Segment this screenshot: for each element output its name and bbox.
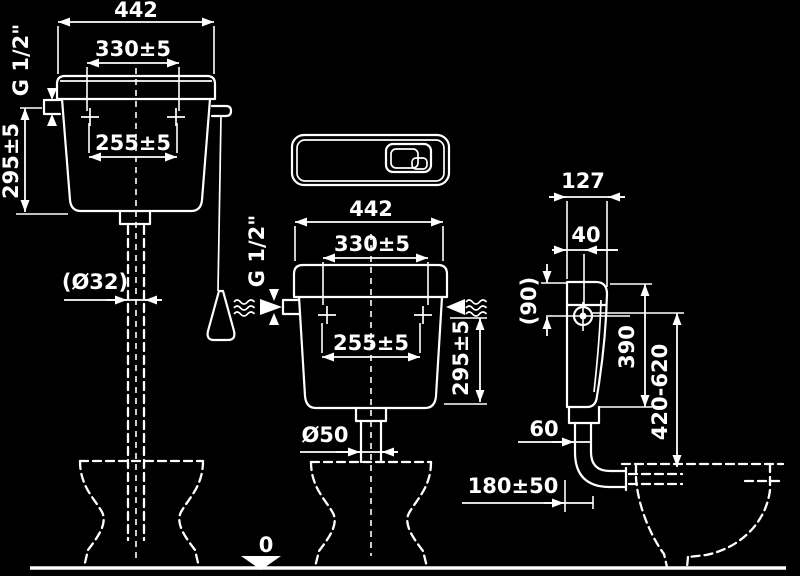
dim-width-label: 442 [114, 0, 158, 22]
high-level-cistern-front-view: 442 330±5 255±5 G 1/2" 295±5 (Ø32) [0, 0, 234, 567]
wc-bowl-front-hidden [80, 461, 203, 567]
cistern-top-view [292, 135, 449, 185]
dim-width-label: 442 [349, 197, 393, 221]
dim-lower-holes-label: 255±5 [95, 131, 171, 155]
dim-lower-holes-label: 255±5 [333, 331, 409, 355]
dim-depth-label: 127 [561, 169, 605, 193]
floor-level-label: 0 [259, 533, 274, 557]
dim-wall-clearance-label: 180±50 [468, 474, 559, 498]
dim-inlet-offset-label: 40 [571, 223, 600, 247]
dim-height-label: 295±5 [0, 123, 23, 199]
technical-drawing-page: 442 330±5 255±5 G 1/2" 295±5 (Ø32) [0, 0, 800, 576]
mounting-holes [81, 108, 185, 126]
pull-handle [208, 291, 235, 340]
wc-bowl-side-hidden [622, 464, 783, 567]
dim-height-label: 295±5 [449, 320, 473, 396]
dim-upper-holes-label: 330±5 [334, 232, 410, 256]
dim-inlet-height-range-label: 420-620 [648, 344, 672, 440]
dim-height-label: 390 [615, 325, 639, 369]
low-level-cistern-front-view: 442 330±5 G 1/2" [234, 197, 487, 567]
cistern-dimension-drawing: 442 330±5 255±5 G 1/2" 295±5 (Ø32) [0, 0, 800, 576]
dim-upper-holes-label: 330±5 [95, 37, 171, 61]
water-supply-right [446, 299, 487, 316]
flush-button [386, 144, 431, 172]
dim-pipe-diameter-label: (Ø32) [62, 270, 128, 294]
inlet-thread-label: G 1/2" [245, 215, 269, 287]
dim-outlet-offset-label: 60 [529, 417, 558, 441]
dim-pipe-diameter-label: Ø50 [301, 423, 348, 447]
cistern-side-view: 127 40 (90) 390 420-620 [462, 169, 783, 567]
inlet-thread-label: G 1/2" [9, 24, 33, 96]
water-supply-left [234, 299, 282, 316]
mounting-holes [318, 306, 432, 324]
dim-top-to-inlet-label: (90) [517, 277, 541, 325]
